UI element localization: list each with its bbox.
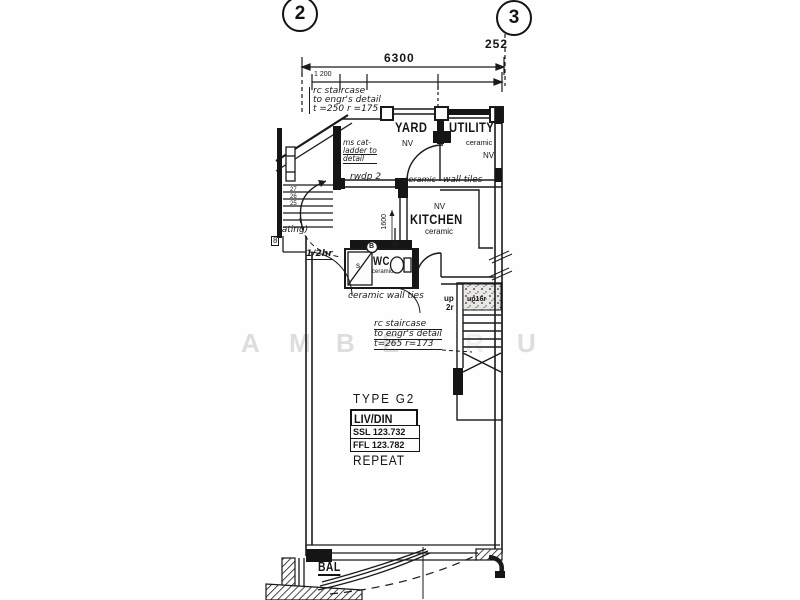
- kitchen-finish-label: ceramic: [425, 228, 453, 236]
- rating-partial-note: rating): [278, 226, 308, 235]
- grid-bubble-3: 3: [496, 0, 532, 36]
- balcony-walls: [266, 547, 505, 600]
- room-label-utility: UTILITY: [449, 120, 494, 134]
- utility-finish-label: ceramic: [466, 139, 492, 147]
- tread-number: 25: [290, 201, 297, 207]
- unit-ffl-label: FFL 123.782: [350, 438, 420, 452]
- unit-ssl-label: SSL 123.732: [350, 425, 420, 439]
- unit-repeat-label: REPEAT: [353, 453, 405, 467]
- eight-partial-note: 8: [271, 236, 279, 246]
- dim-overall: 6300: [384, 52, 415, 64]
- rwdp-note: rwdp 2: [350, 173, 381, 182]
- yard-vent-label: NV: [402, 140, 413, 148]
- unit-type-label: TYPE G2: [353, 392, 415, 405]
- dim-kitchen-vertical: 1600: [381, 214, 388, 230]
- wc-finish-label: ceramic: [372, 269, 393, 275]
- tread-number: 27: [290, 187, 297, 193]
- dim-partial-right: 252: [485, 38, 508, 50]
- tread-number: 26: [290, 194, 297, 200]
- shower-label: s: [356, 262, 360, 270]
- fixture-label: B: [369, 243, 374, 250]
- wc-tiles-note: ceramic wall ties: [348, 292, 424, 301]
- up16r-label: up16r: [467, 296, 486, 303]
- room-label-wc: WC: [373, 255, 390, 267]
- stair-note-top: rc staircase to engr's detail t =250 r =…: [309, 87, 381, 114]
- fire-rating-note: 1/2hr: [306, 250, 333, 259]
- stair-note-center: rc staircase to engr's detail t=265 r=17…: [374, 320, 442, 350]
- utility-vent-label: NV: [483, 152, 494, 160]
- kitchen-tiles-note-1: ceramic: [404, 176, 436, 184]
- kitchen-tiles-note-2: wall tiles: [443, 176, 483, 185]
- up-riser-label: 2r: [446, 304, 454, 312]
- room-label-kitchen: KITCHEN: [410, 212, 463, 226]
- up-label: up: [444, 295, 454, 303]
- room-label-balcony: BAL: [318, 560, 341, 576]
- floorplan-sheet: A M B E R U: [0, 0, 800, 600]
- room-label-yard: YARD: [395, 120, 427, 134]
- cat-ladder-note: ms cat- ladder to detail: [343, 139, 377, 164]
- dim-sub: 1 200: [314, 71, 332, 78]
- kitchen-vent-label: NV: [434, 203, 445, 211]
